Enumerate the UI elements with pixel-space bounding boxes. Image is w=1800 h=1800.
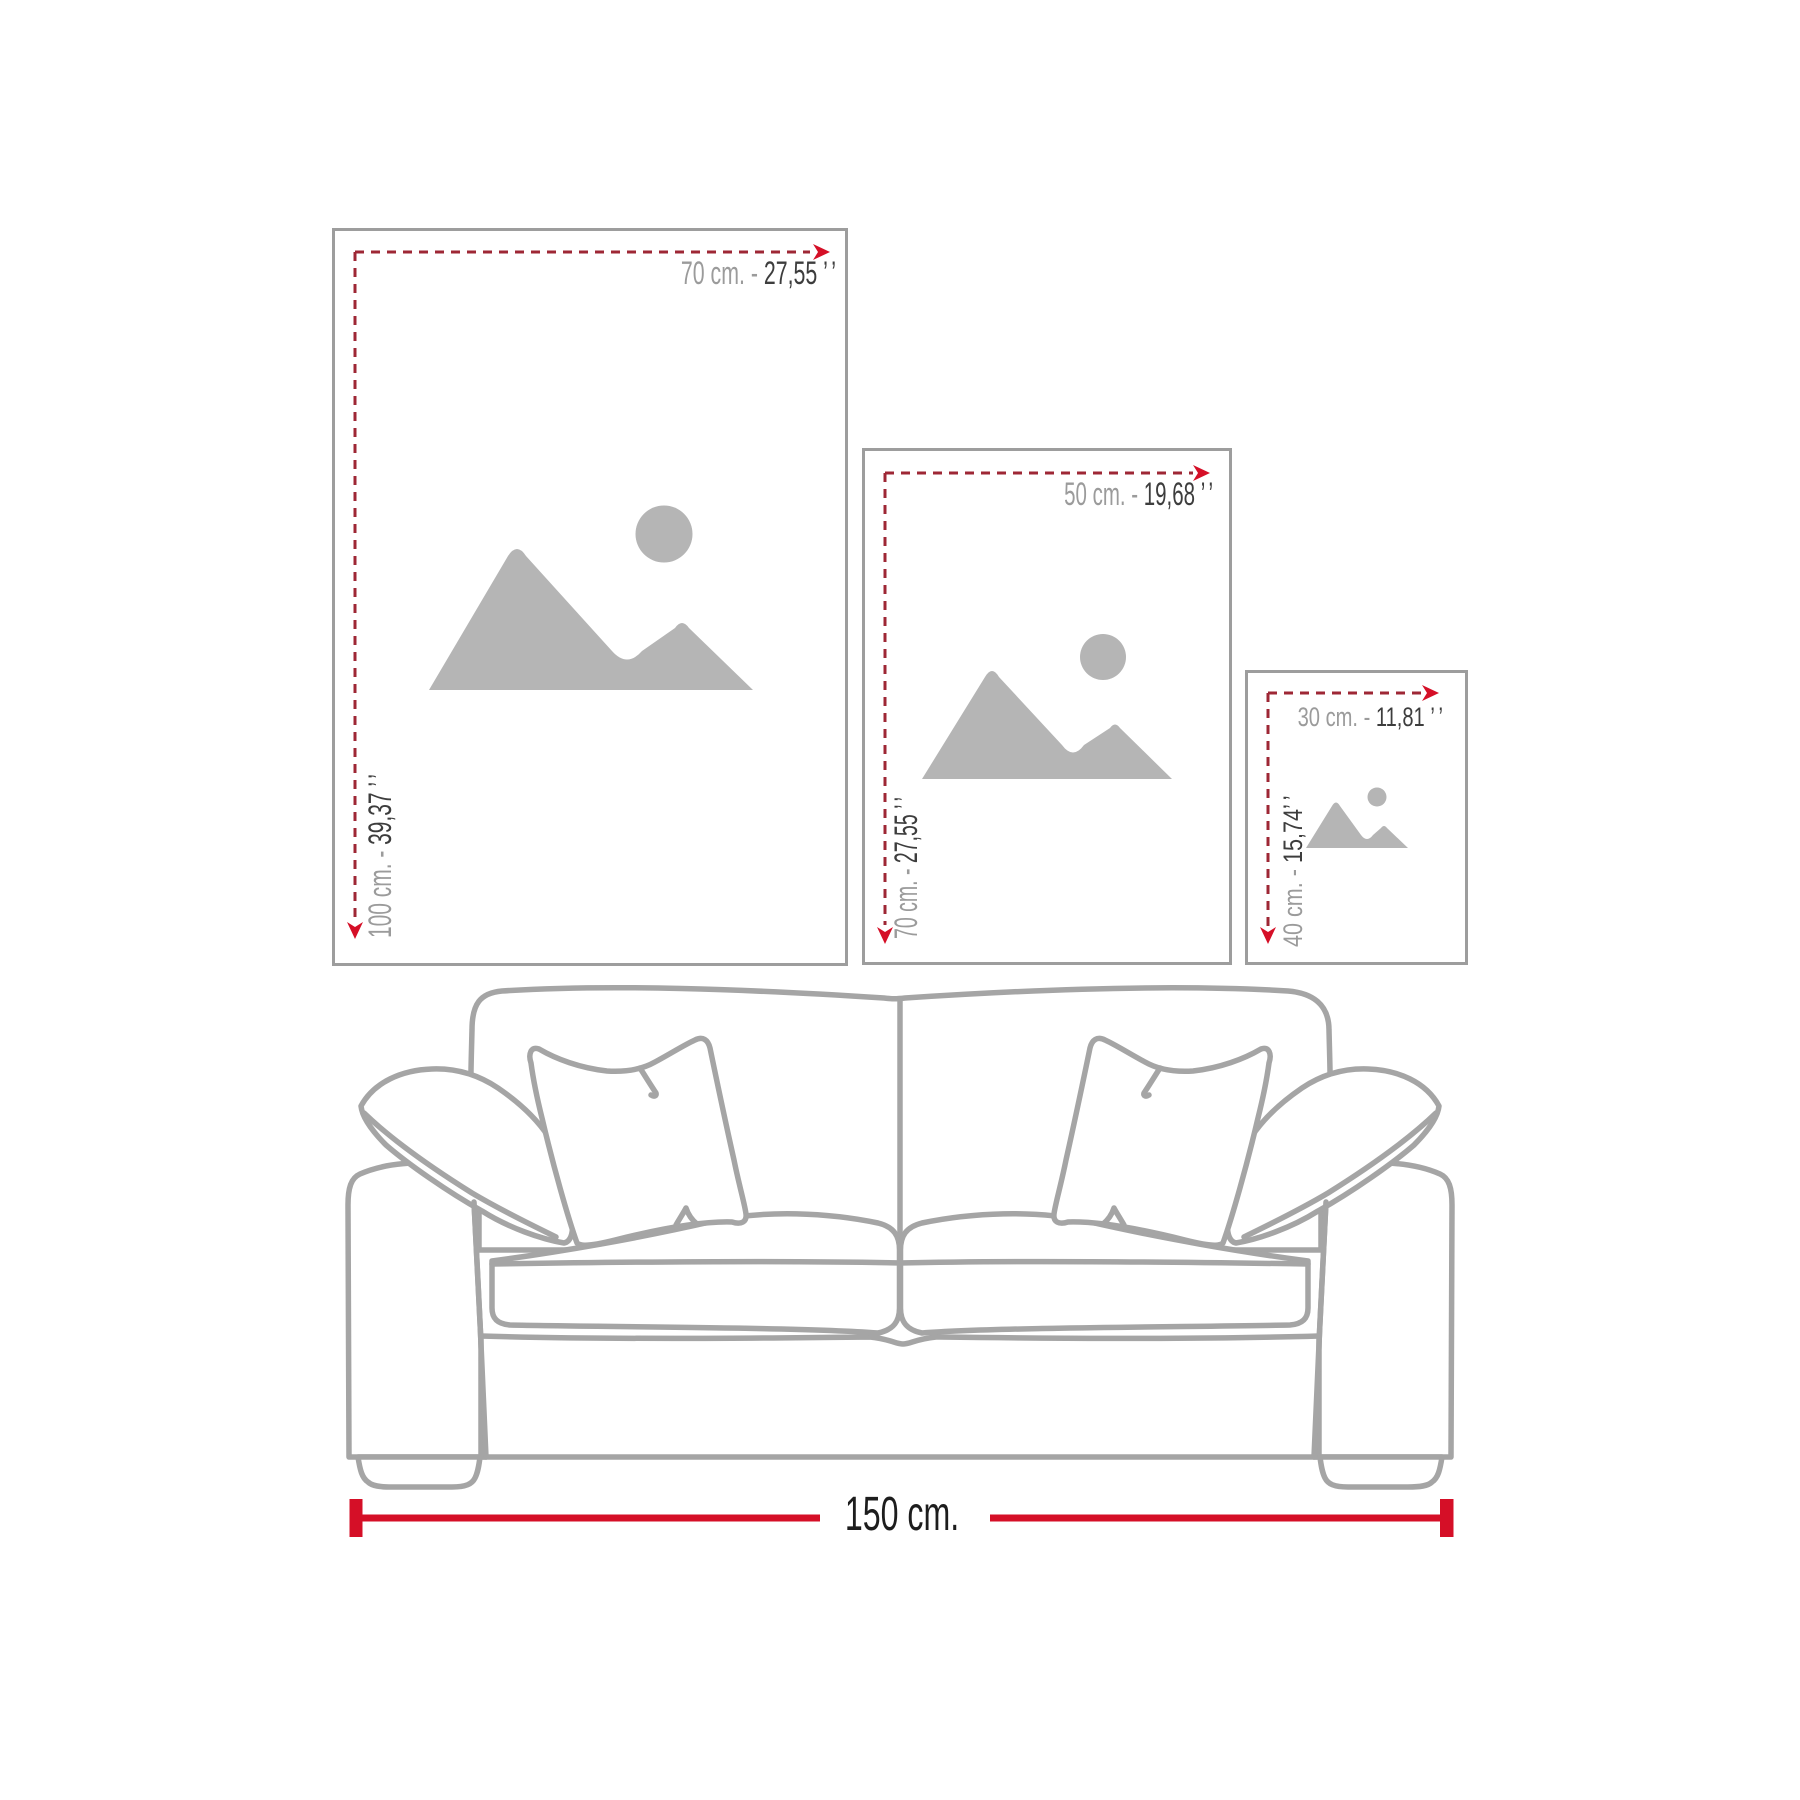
svg-text:50 cm. - 19,68 ’’: 50 cm. - 19,68 ’’	[1064, 476, 1213, 512]
svg-text:70 cm. - 27,55 ’’: 70 cm. - 27,55 ’’	[888, 797, 924, 939]
svg-text:40 cm. - 15,74’’: 40 cm. - 15,74’’	[1279, 795, 1309, 947]
svg-text:70 cm. - 27,55 ’’: 70 cm. - 27,55 ’’	[681, 255, 836, 291]
svg-text:100 cm. - 39,37 ’’: 100 cm. - 39,37 ’’	[363, 774, 398, 938]
svg-text:150 cm.: 150 cm.	[845, 1487, 959, 1541]
svg-text:30 cm. - 11,81 ’’: 30 cm. - 11,81 ’’	[1298, 702, 1443, 733]
